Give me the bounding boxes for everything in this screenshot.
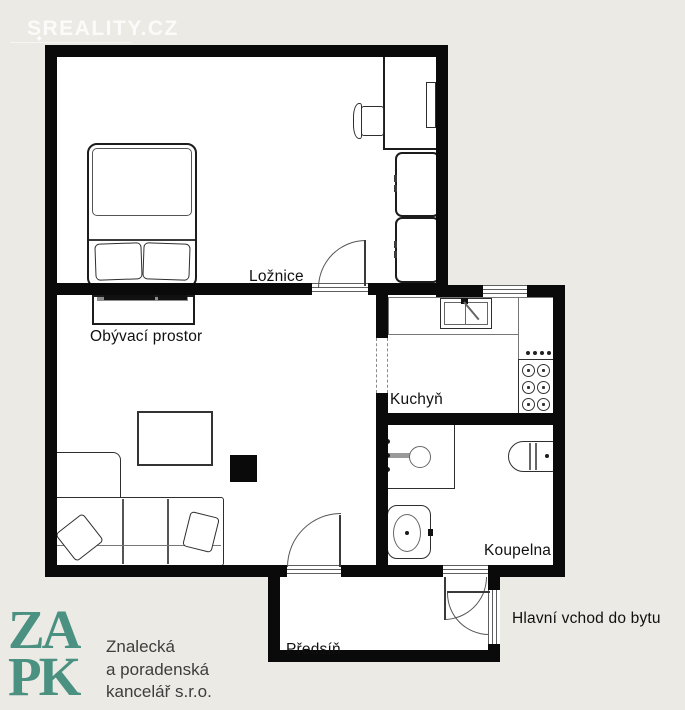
toilet-tank-line bbox=[535, 443, 537, 470]
kitchen-window bbox=[483, 285, 527, 297]
stove-burner bbox=[522, 364, 535, 377]
wall-bottom-a bbox=[45, 565, 287, 577]
wardrobe-handle bbox=[394, 185, 397, 192]
bed-duvet bbox=[92, 148, 192, 216]
desk-chair-seat bbox=[361, 106, 384, 136]
company-name: Znalecká a poradenská kancelář s.r.o. bbox=[106, 636, 212, 704]
bed-pillow-left bbox=[94, 242, 142, 281]
wardrobe-upper bbox=[395, 152, 440, 217]
entrance-door-leaf bbox=[447, 591, 490, 593]
wall-hallway-right-top bbox=[488, 577, 500, 590]
wall-top bbox=[45, 45, 448, 57]
company-name-line1: Znalecká bbox=[106, 636, 212, 659]
wall-bottom-b bbox=[341, 565, 443, 577]
stove-knob bbox=[526, 351, 530, 355]
bathroom-door-threshold bbox=[443, 565, 488, 577]
open-passage-dashed bbox=[376, 338, 388, 393]
stove-knob bbox=[547, 351, 551, 355]
wardrobe-lower bbox=[395, 217, 440, 283]
living-door-leaf bbox=[339, 515, 341, 567]
stove-burner bbox=[522, 398, 535, 411]
bedroom-door-leaf bbox=[364, 240, 366, 286]
washbasin-tap bbox=[428, 529, 433, 536]
wall-left bbox=[45, 45, 57, 577]
black-cabinet bbox=[230, 455, 257, 482]
room-label-kitchen: Kuchyň bbox=[390, 391, 443, 409]
zapk-logo: ZA PK bbox=[8, 606, 78, 700]
sreality-watermark: SREALITY.CZ bbox=[27, 17, 179, 41]
washbasin-drain bbox=[405, 531, 409, 535]
entrance-label: Hlavní vchod do bytu bbox=[512, 610, 661, 628]
sofa-seat-divider bbox=[167, 499, 169, 564]
toilet-tank-line bbox=[529, 443, 531, 470]
room-label-bathroom: Koupelna bbox=[484, 542, 551, 560]
sparkle-icon: ✦ bbox=[35, 34, 43, 45]
company-name-line2: a poradenská bbox=[106, 659, 212, 682]
bed-fold-line bbox=[89, 239, 195, 241]
wall-right bbox=[553, 285, 565, 577]
stove-burner bbox=[537, 381, 550, 394]
room-label-bedroom: Ložnice bbox=[249, 268, 304, 286]
wall-hallway-right-bottom bbox=[488, 644, 500, 662]
coffee-table bbox=[137, 411, 213, 466]
stove-knob bbox=[533, 351, 537, 355]
stove-burner bbox=[537, 364, 550, 377]
room-label-hallway: Předsíň bbox=[286, 641, 341, 659]
shower-head bbox=[409, 446, 431, 468]
sofa-seat-divider bbox=[122, 499, 124, 564]
room-label-living: Obývací prostor bbox=[90, 328, 202, 346]
bathroom-door-leaf bbox=[444, 577, 446, 620]
toilet-flush-button bbox=[545, 454, 549, 458]
sofa-chaise bbox=[53, 452, 121, 499]
entrance-door-threshold bbox=[488, 590, 500, 644]
stove-knob bbox=[540, 351, 544, 355]
zapk-logo-line2: PK bbox=[8, 653, 78, 700]
company-name-line3: kancelář s.r.o. bbox=[106, 681, 212, 704]
bed-pillow-right bbox=[142, 242, 190, 281]
stove-burner bbox=[537, 398, 550, 411]
watermark-underline bbox=[10, 42, 132, 43]
stove-burner bbox=[522, 381, 535, 394]
wall-living-kitchen bbox=[376, 285, 388, 577]
wardrobe-handle bbox=[394, 251, 397, 258]
wall-kitchen-bathroom bbox=[376, 413, 560, 425]
wardrobe-handle bbox=[394, 241, 397, 248]
wall-bottom-c bbox=[488, 565, 565, 577]
wardrobe-handle bbox=[394, 175, 397, 182]
wall-bedroom-right bbox=[436, 45, 448, 297]
monitor bbox=[426, 82, 436, 128]
